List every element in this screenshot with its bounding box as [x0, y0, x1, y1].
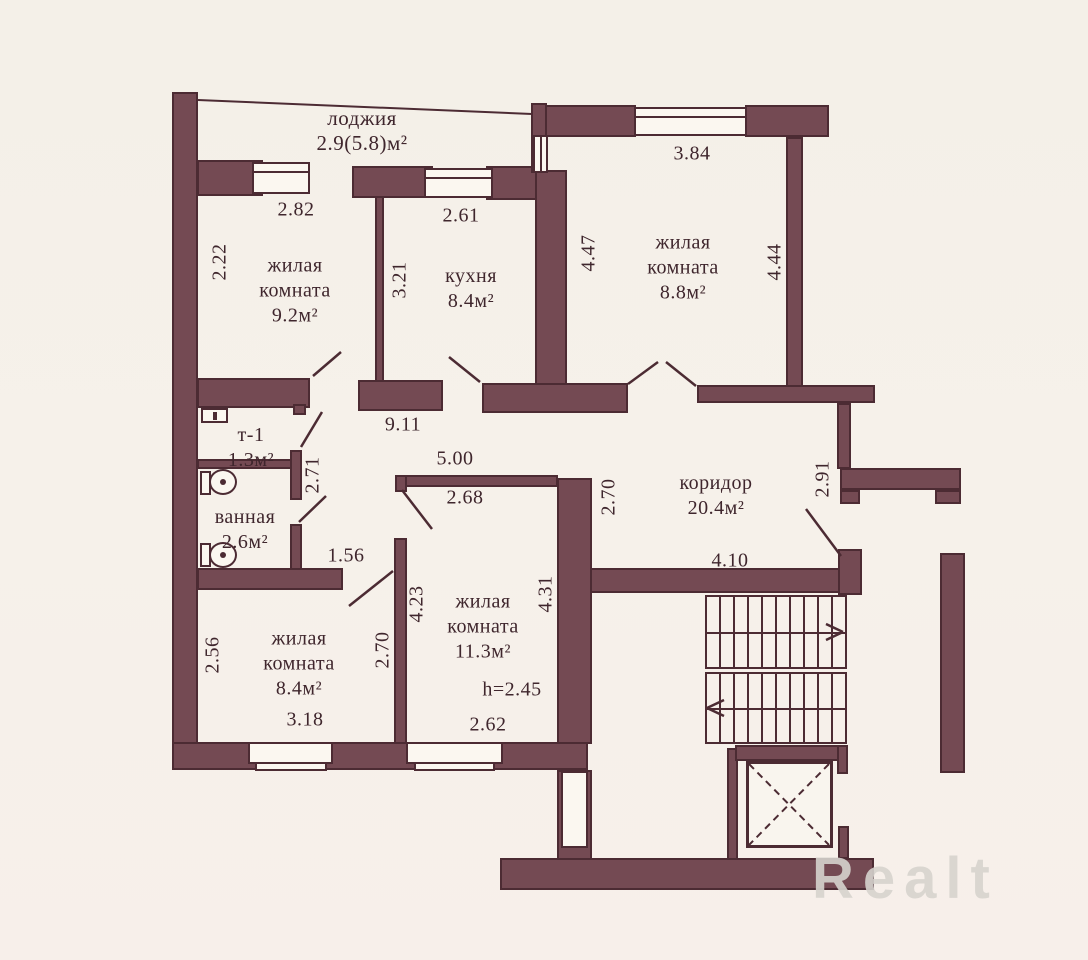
door-leaf-wc — [301, 412, 322, 447]
wall-room2-right — [786, 137, 803, 387]
dim-label-271: 2.71 — [302, 457, 325, 494]
wall-bath-bottom — [197, 568, 343, 590]
dim-label-270-room3: 2.70 — [372, 632, 395, 669]
wall-left-outer — [172, 92, 198, 770]
room-label-living1: жилая комната 9.2м² — [259, 254, 330, 329]
dim-label-156: 1.56 — [328, 545, 365, 568]
dim-label-222: 2.22 — [209, 244, 232, 281]
wall-room2-top-right — [745, 105, 829, 137]
room-area: 8.8м² — [647, 281, 718, 306]
dim-label-268: 2.68 — [447, 487, 484, 510]
window-room2 — [634, 107, 747, 136]
stair-flight-upper — [705, 595, 847, 669]
dim-label-261: 2.61 — [443, 205, 480, 228]
wall-stub-wc — [290, 450, 302, 500]
room-area: 20.4м² — [679, 496, 752, 521]
window-room1 — [252, 162, 310, 194]
room-name-line: жилая — [263, 627, 334, 652]
dim-label-270-corridor: 2.70 — [598, 479, 621, 516]
dim-label-321: 3.21 — [389, 262, 412, 299]
door-leaf-kitchen — [449, 357, 480, 382]
wall-bottom-outer — [172, 742, 588, 770]
door-leaf-entry — [806, 509, 841, 556]
balcony-name: лоджия — [316, 106, 407, 131]
room-name-line: комната — [259, 279, 330, 304]
dim-label-423: 4.23 — [406, 586, 429, 623]
room-name-line: жилая — [647, 231, 718, 256]
room-area: 8.4м² — [263, 677, 334, 702]
room-label-living3: жилая комната 8.4м² — [263, 627, 334, 702]
window-room3-outer — [248, 742, 333, 764]
balcony-label: лоджия 2.9(5.8)м² — [316, 106, 407, 156]
wall-room4-top-partition — [395, 475, 558, 487]
door-leaf-bath — [299, 496, 326, 522]
elevator-shaft — [746, 761, 833, 848]
room-area: 2.6м² — [215, 530, 276, 555]
dim-label-410: 4.10 — [712, 550, 749, 573]
ceiling-height-label: h=2.45 — [482, 679, 541, 702]
dim-label-318: 3.18 — [287, 709, 324, 732]
wall-kitchen-partition — [375, 196, 384, 382]
room-label-wc: т-1 1.3м² — [228, 423, 274, 473]
wall-entry-vertical — [837, 403, 851, 469]
window-room4-sill — [414, 762, 495, 771]
window-balcony-end — [533, 135, 548, 173]
wall-right-stairwell — [940, 553, 965, 773]
dim-label-282: 2.82 — [278, 199, 315, 222]
dim-label-291: 2.91 — [812, 461, 835, 498]
wall-partition-vertical — [394, 538, 407, 744]
wall-room2-bottom — [697, 385, 875, 403]
window-under-stairs — [561, 771, 588, 848]
window-kitchen — [424, 168, 493, 198]
floor-plan: лоджия 2.9(5.8)м² жилая комната 9.2м² ку… — [0, 0, 1088, 960]
realt-watermark: Realt — [812, 845, 999, 912]
dim-label-256: 2.56 — [202, 637, 225, 674]
wall-entry-top — [840, 468, 961, 490]
room-area: 11.3м² — [447, 640, 518, 665]
dim-label-431: 4.31 — [535, 576, 558, 613]
water-heater-icon — [201, 408, 228, 423]
wall-room2-top-left — [532, 105, 636, 137]
room-name-line: т-1 — [228, 423, 274, 448]
wall-room4-top-cap — [395, 475, 407, 492]
dim-label-384: 3.84 — [674, 143, 711, 166]
wall-wc-nub — [293, 404, 306, 415]
wall-entry-tab-left — [840, 490, 860, 504]
room-label-corridor: коридор 20.4м² — [679, 471, 752, 521]
room-name-line: комната — [647, 256, 718, 281]
room-label-living4: жилая комната 11.3м² — [447, 590, 518, 665]
stair-flight-lower — [705, 672, 847, 744]
wall-elevator-top — [735, 745, 847, 761]
room-name-line: комната — [447, 615, 518, 640]
room-name-line: жилая — [259, 254, 330, 279]
room-label-bath: ванная 2.6м² — [215, 505, 276, 555]
door-leaf-room2-left — [628, 362, 658, 384]
room-name-line: ванная — [215, 505, 276, 530]
window-room4-outer — [406, 742, 503, 764]
door-leaf-room1 — [313, 352, 341, 376]
window-room3-sill — [255, 762, 327, 771]
dim-label-262: 2.62 — [470, 714, 507, 737]
room-label-kitchen: кухня 8.4м² — [445, 264, 497, 314]
wall-entry-tab-right — [935, 490, 961, 504]
room-name-line: кухня — [445, 264, 497, 289]
door-leaf-room4 — [402, 490, 432, 529]
wall-room4-right — [557, 478, 592, 744]
dim-label-444: 4.44 — [764, 244, 787, 281]
balcony-area: 2.9(5.8)м² — [316, 131, 407, 156]
dim-label-447: 4.47 — [578, 235, 601, 272]
room-label-living2: жилая комната 8.8м² — [647, 231, 718, 306]
room-area: 8.4м² — [445, 289, 497, 314]
wall-elevator-left — [727, 748, 738, 860]
dim-label-500: 5.00 — [437, 448, 474, 471]
door-leaf-room3 — [349, 571, 393, 606]
door-leaf-room2-right — [666, 362, 696, 386]
room-name-line: жилая — [447, 590, 518, 615]
wall-elevator-stub-top — [837, 745, 848, 774]
room-area: 1.3м² — [228, 448, 274, 473]
wall-central-block — [482, 383, 628, 413]
wall-corridor-tab — [838, 549, 862, 595]
wall-kitchen-top-left — [352, 166, 433, 198]
wall-stub-bath — [290, 524, 302, 570]
room-name-line: коридор — [679, 471, 752, 496]
room-area: 9.2м² — [259, 304, 330, 329]
wall-mid-band-right — [358, 380, 443, 411]
room-name-line: комната — [263, 652, 334, 677]
wall-shaft-kitchen-room2 — [535, 170, 567, 388]
dim-label-911: 9.11 — [385, 414, 421, 437]
